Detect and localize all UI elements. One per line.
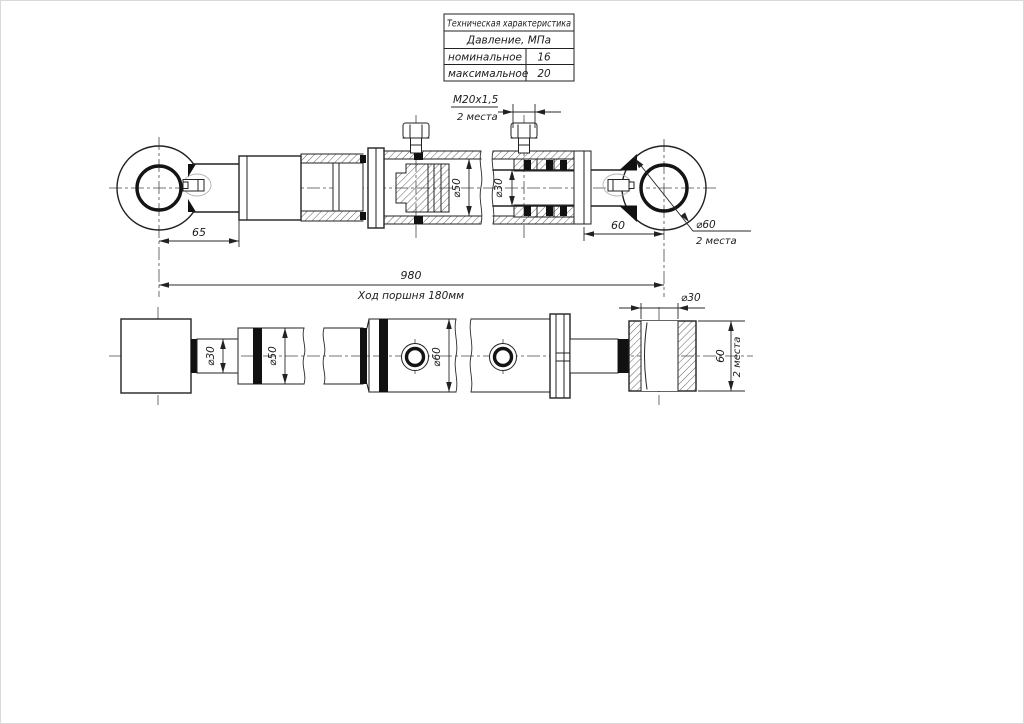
break-line [480, 151, 482, 224]
dim-overall: 980 Ход поршня 180мм [159, 269, 664, 302]
technical-drawing: Техническая характеристика Давление, МПа… [1, 1, 1024, 724]
eye-diameter-text: ⌀60 [696, 219, 716, 231]
spec-table: Техническая характеристика Давление, МПа… [444, 14, 574, 81]
thread-callout: М20х1,5 2 места [451, 94, 561, 128]
spec-table-title: Техническая характеристика [447, 19, 571, 30]
drawing-sheet: Техническая характеристика Давление, МПа… [0, 0, 1024, 724]
dim-bore: ⌀50 [451, 159, 472, 216]
plan-dim-eye-bore-text: ⌀30 [681, 292, 701, 304]
plan-eye-places-text: 2 места [732, 337, 743, 378]
plan-front-rod [570, 339, 618, 373]
port-plug-1 [403, 123, 429, 153]
spec-table-subtitle: Давление, МПа [466, 35, 551, 47]
thread-places: 2 места [457, 112, 498, 123]
plan-dim-eye-width-text: 60 [715, 349, 727, 363]
plan-dim-barrel: ⌀60 [431, 319, 452, 392]
mid-flange [368, 148, 384, 228]
dim-right-offset-text: 60 [611, 219, 625, 232]
plan-dim-barrel-text: ⌀60 [431, 347, 443, 367]
port-plug-2 [511, 123, 537, 153]
dim-right-offset: 60 [584, 219, 664, 241]
grease-fitting [608, 180, 629, 192]
spec-row-max-value: 20 [537, 68, 551, 80]
front-view: М20х1,5 2 места 65 ⌀50 ⌀30 [109, 94, 751, 302]
break-line [455, 319, 457, 392]
plan-cylinder [238, 328, 363, 384]
rear-cap [239, 156, 301, 220]
plan-dim-rod-text: ⌀30 [205, 346, 217, 366]
plan-view: ⌀30 ⌀50 [109, 292, 753, 405]
spec-row-max-label: максимальное [448, 68, 528, 80]
dim-bore-text: ⌀50 [451, 178, 463, 198]
plan-left-eye-block [121, 319, 191, 393]
thread-label: М20х1,5 [453, 94, 499, 106]
weld-mark [619, 154, 637, 171]
plan-dim-eye-bore: ⌀30 [619, 292, 705, 319]
dim-left-offset-text: 65 [192, 226, 206, 239]
spec-row-nominal-label: номинальное [448, 52, 522, 64]
plan-barrel [360, 319, 550, 392]
stroke-note-text: Ход поршня 180мм [357, 290, 464, 302]
gland [514, 151, 591, 224]
plan-dim-cylinder: ⌀50 [267, 328, 288, 384]
plan-flange [550, 314, 570, 398]
spec-row-nominal-value: 16 [537, 52, 551, 64]
overall-length-text: 980 [401, 269, 422, 282]
piston [396, 152, 449, 224]
plan-dim-cylinder-text: ⌀50 [267, 346, 279, 366]
dim-left-offset: 65 [159, 215, 239, 247]
break-line [470, 319, 472, 392]
weld-band [618, 339, 629, 373]
plan-right-eye-block [629, 321, 696, 391]
weld-band [191, 339, 197, 373]
plan-rear-rod [197, 339, 238, 373]
rear-tube [301, 154, 366, 221]
dim-rod-text: ⌀30 [493, 178, 505, 198]
eye-places-text: 2 места [696, 236, 737, 247]
